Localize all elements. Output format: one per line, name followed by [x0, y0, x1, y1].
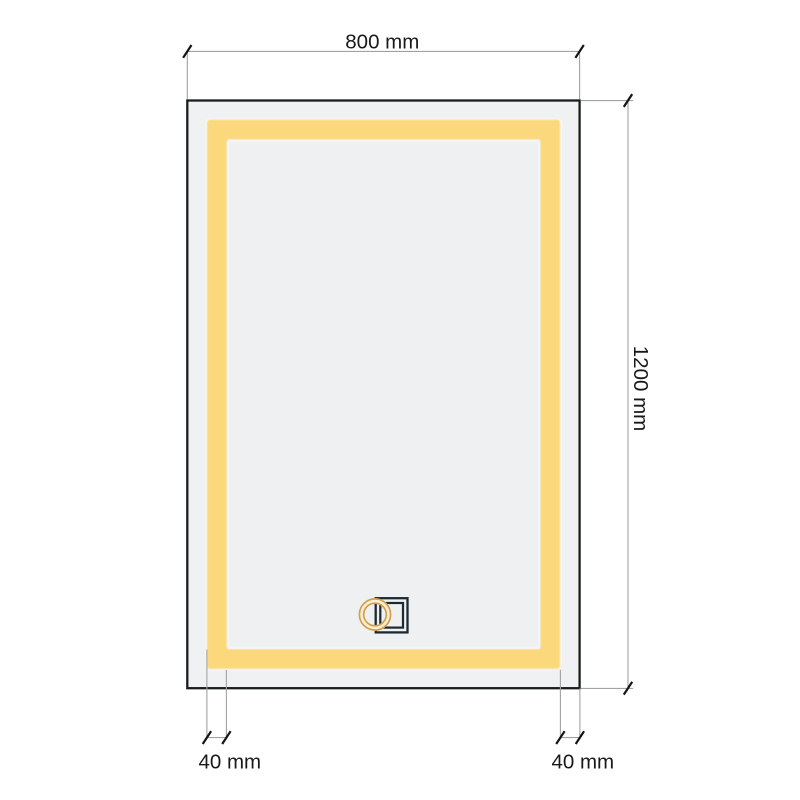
svg-text:800 mm: 800 mm [345, 31, 419, 54]
svg-text:40 mm: 40 mm [198, 750, 261, 773]
svg-text:40 mm: 40 mm [551, 750, 614, 773]
svg-text:1200 mm: 1200 mm [629, 346, 652, 431]
